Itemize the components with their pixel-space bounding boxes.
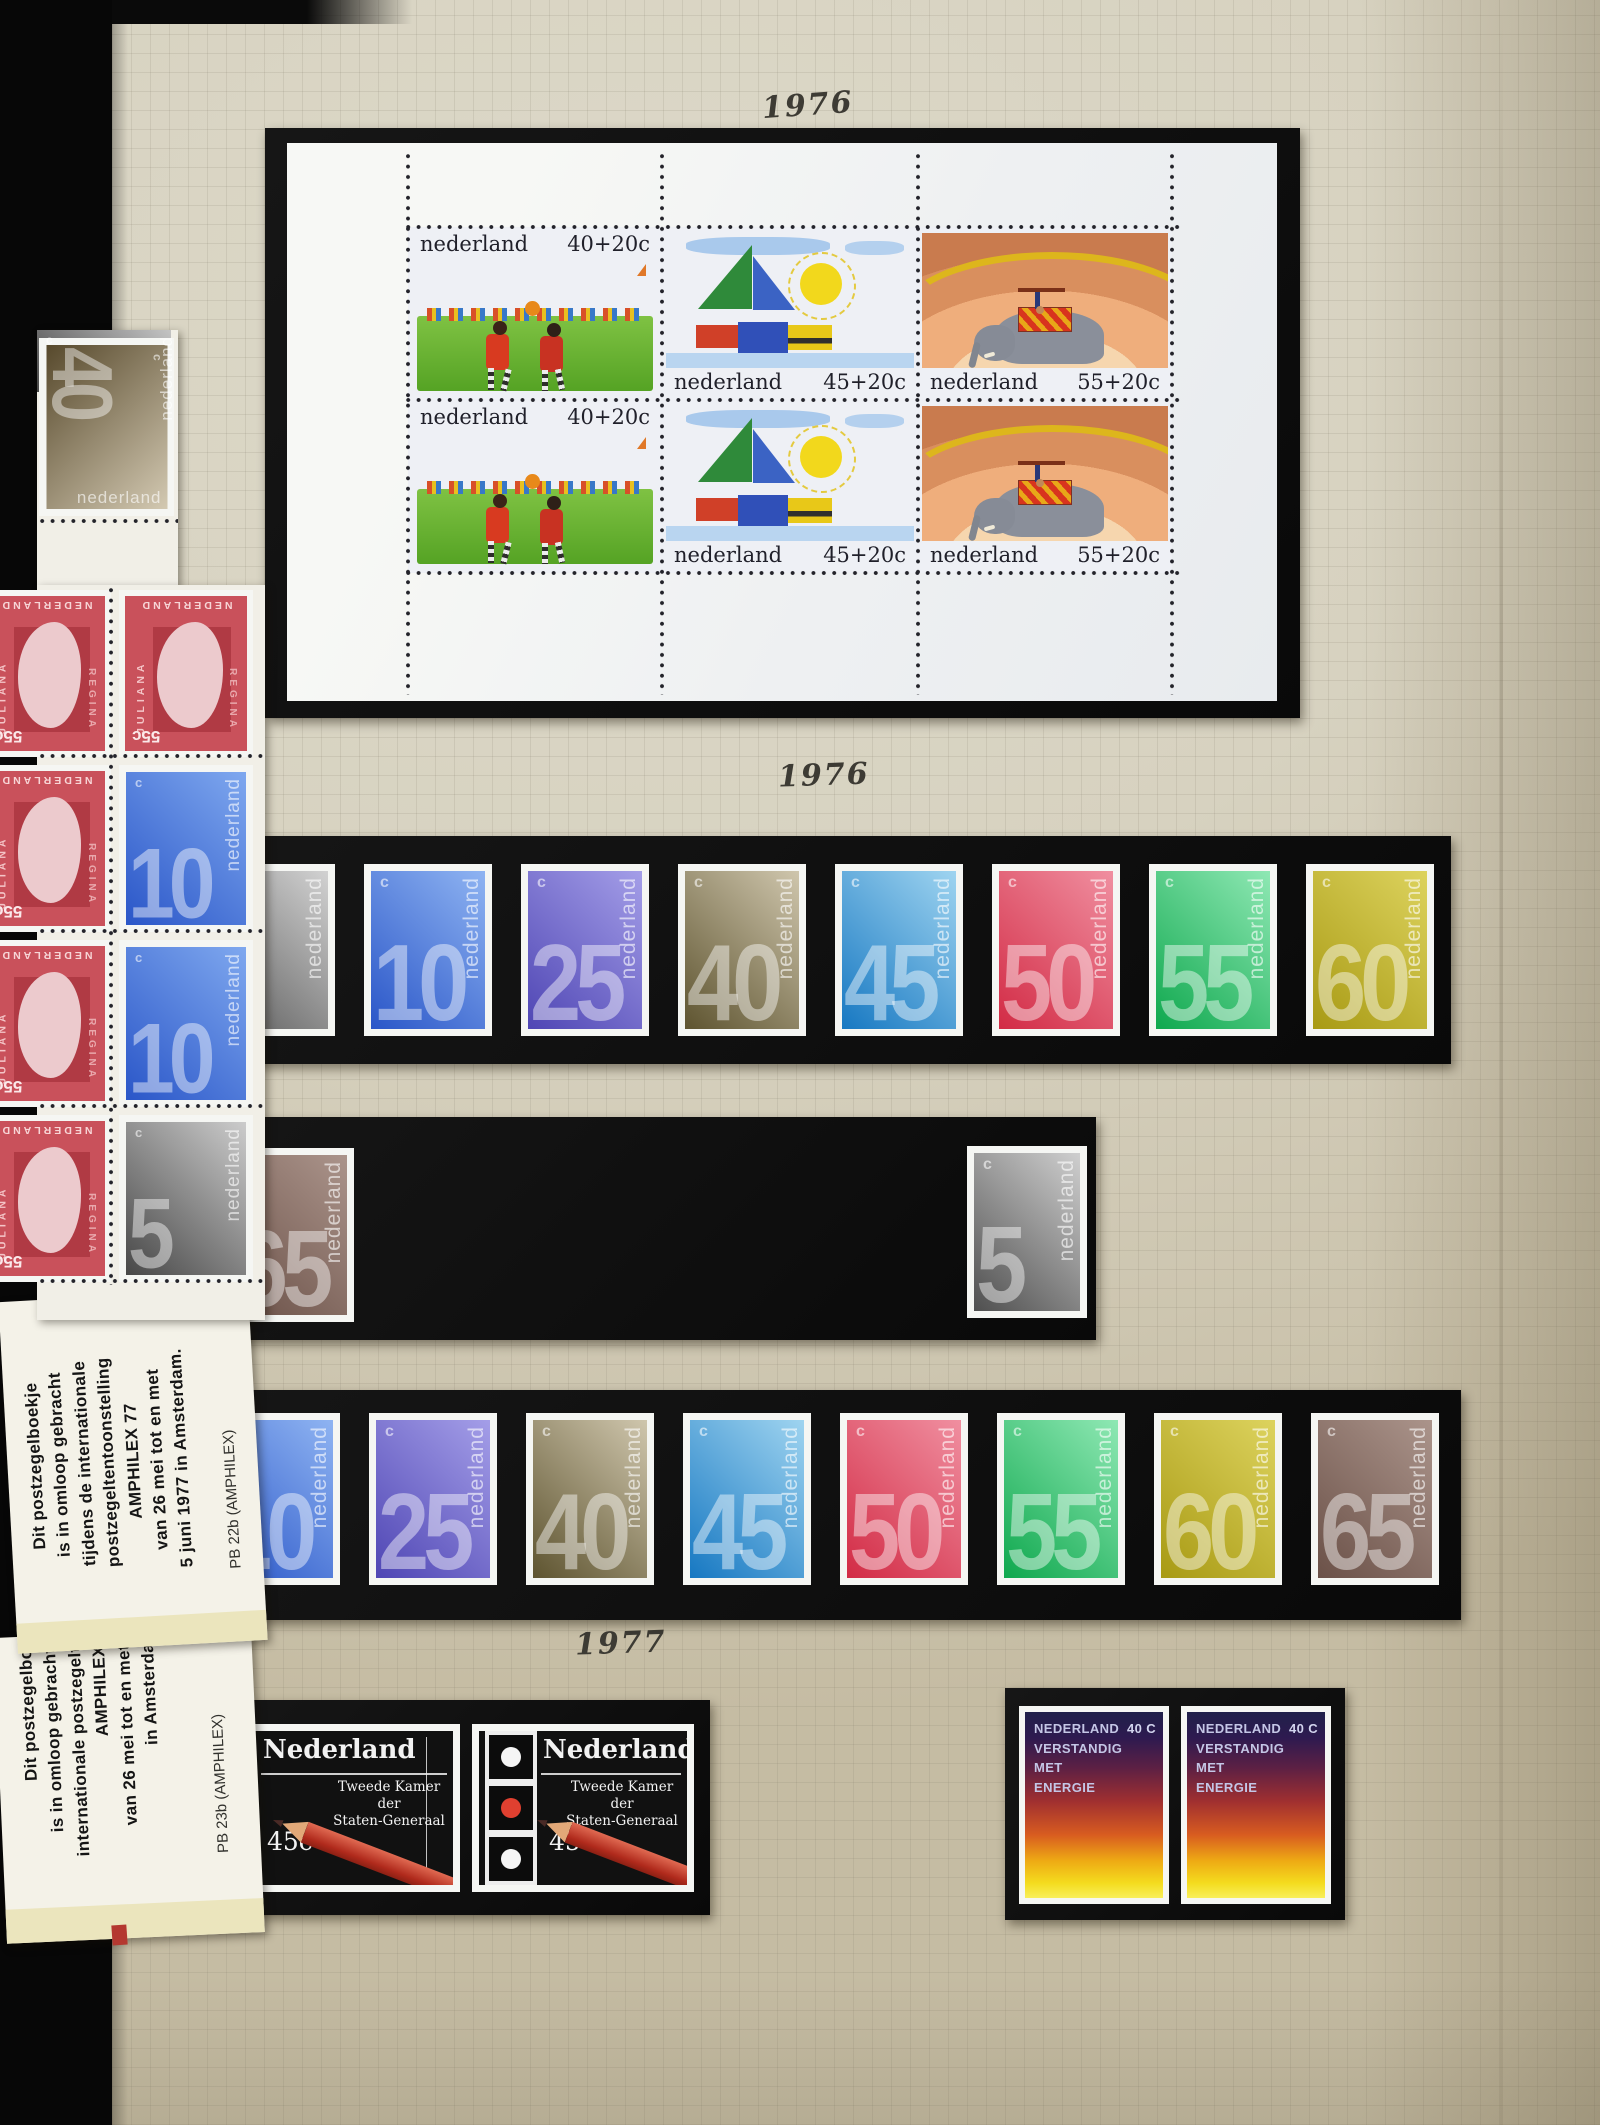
queen-profile-silhouette [157, 622, 223, 727]
perforation-line [913, 151, 923, 695]
stamp-value: 40 C [1289, 1719, 1318, 1739]
stamp-face: c55nederland [1156, 871, 1270, 1029]
player-shirt [540, 336, 563, 372]
stamp-face: c45nederland [842, 871, 956, 1029]
country-label: nederland [308, 1426, 332, 1528]
stamp-face: NederlandTweede Kamer derStaten-Generaal… [479, 1731, 687, 1885]
hull-block-red [696, 325, 738, 348]
stamp-value: 25 [378, 1484, 468, 1578]
stamp-face: c10nederland [126, 772, 246, 925]
juliana-55c-stamp: 55cNEDERLANDJULIANAREGINA [0, 940, 111, 1107]
pencil-tip [271, 1816, 284, 1828]
country-label: nederland [223, 1128, 245, 1222]
stamp-face: 40 CNEDERLANDVERSTANDIGMETENERGIE [1187, 1712, 1325, 1898]
denomination-label: 40+20c [567, 405, 650, 429]
country-label: nederland [223, 778, 245, 872]
numeral-stamp-55c: c55nederland [1149, 864, 1277, 1036]
subtitle-line: Tweede Kamer der [331, 1779, 447, 1813]
country-label: nederland [76, 488, 161, 508]
souvenir-sheet-1976: nederland40+20cnederland45+20cnederland5… [287, 143, 1277, 701]
juliana-55c-stamp: 55cNEDERLANDJULIANAREGINA [0, 590, 111, 757]
country-label: nederland [622, 1426, 646, 1528]
kite [637, 437, 646, 449]
stamp-value: 5 [128, 1190, 175, 1275]
country-label: nederland [303, 877, 327, 979]
perforation-line [37, 1276, 265, 1286]
currency-symbol: c [694, 874, 703, 892]
stamp-face: 55cNEDERLANDJULIANAREGINA [0, 771, 105, 926]
country-label: 40 CNEDERLAND [1196, 1719, 1318, 1739]
stamp-face: c40nederland [46, 345, 167, 509]
hull-block-blue [738, 495, 788, 526]
stamp-face: c55nederland [1004, 1420, 1118, 1578]
stamp-face: c25nederland [376, 1420, 490, 1578]
ballot-dot [501, 1747, 521, 1767]
country-label: nederland [674, 543, 782, 567]
denomination-label: 40+20c [567, 232, 650, 256]
illustration-children-playing-with-ball [412, 432, 658, 567]
country-label: nederland [779, 1426, 803, 1528]
subtitle-line: Staten-Generaal [331, 1813, 447, 1830]
page-crease [1500, 0, 1503, 2125]
illustration-circus-elephant-with-acrobat [922, 406, 1168, 541]
slogan-line: ENERGIE [1034, 1778, 1156, 1798]
inverted-design: 55cNEDERLANDJULIANAREGINA [0, 771, 105, 926]
country-label: NEDERLAND [0, 774, 105, 786]
tweede-kamer-45c-stamp: NederlandTweede Kamer derStaten-Generaal… [246, 1724, 460, 1892]
queen-name-label: JULIANA [0, 1185, 8, 1259]
stamp-face: c5nederland [126, 1122, 246, 1275]
hull-block-striped [788, 498, 833, 524]
year-label-top: 1976 [761, 85, 855, 126]
stamp-text: 40 CNEDERLANDVERSTANDIGMETENERGIE [1196, 1719, 1318, 1797]
perforation-line [37, 516, 178, 526]
slogan-line: MET [1196, 1758, 1318, 1778]
ballot-column [485, 1731, 537, 1885]
slogan-line: VERSTANDIG [1196, 1739, 1318, 1759]
stamp-caption: nederland45+20c [674, 543, 906, 567]
ball [525, 474, 540, 489]
illustration-circus-elephant-with-acrobat [922, 233, 1168, 368]
stamp-subtitle: Tweede Kamer derStaten-Generaal [331, 1779, 447, 1830]
slogan-line: VERSTANDIG [1034, 1739, 1156, 1759]
booklet-pane-amphilex: 55cNEDERLANDJULIANAREGINA55cNEDERLANDJUL… [37, 585, 265, 1320]
sun [800, 436, 842, 478]
stamp-face: 40 CNEDERLANDVERSTANDIGMETENERGIE [1025, 1712, 1163, 1898]
sheet-stamp-45+20c: nederland45+20c [662, 400, 918, 573]
stamp-face: c5nederland [974, 1153, 1080, 1311]
numeral-stamp-10c: c10nederland [119, 940, 253, 1107]
energy-stamps-mount: 40 CNEDERLANDVERSTANDIGMETENERGIE40 CNED… [1005, 1688, 1345, 1920]
numeral-stamp-50c: c50nederland [840, 1413, 968, 1585]
numeral-stamp-40c: c40nederland [678, 864, 806, 1036]
stamp-value: 40 C [1127, 1719, 1156, 1739]
water [666, 526, 914, 541]
juliana-55c-stamp: 55cNEDERLANDJULIANAREGINA [0, 1115, 111, 1282]
stamp-value: 65 [1320, 1484, 1410, 1578]
ballot-dot [501, 1798, 521, 1818]
country-label: NEDERLAND [125, 599, 247, 611]
stamp-value: 50 [1001, 935, 1091, 1029]
currency-symbol: c [1170, 1423, 1179, 1441]
stamp-face: c10nederland [371, 871, 485, 1029]
player-leg [542, 543, 548, 564]
currency-symbol: c [983, 1156, 992, 1174]
denomination-label: 45+20c [823, 543, 906, 567]
cover-text-columns: Dit postzegelboekjeis in omloop gebracht… [15, 1308, 202, 1617]
country-label: 40 CNEDERLAND [1034, 1719, 1156, 1739]
frame-line [426, 1737, 428, 1879]
currency-symbol: c [537, 874, 546, 892]
perforation-line [37, 1101, 265, 1111]
sky-cloud [845, 414, 905, 428]
country-label: nederland [420, 405, 528, 429]
currency-symbol: c [851, 874, 860, 892]
kite [637, 264, 646, 276]
queen-name-label: JULIANA [0, 660, 8, 734]
ballot-dot [501, 1849, 521, 1869]
currency-symbol: c [385, 1423, 394, 1441]
perforation-line [37, 751, 265, 761]
album-top-edge [112, 0, 412, 24]
ballot-box [489, 1735, 533, 1779]
numeral-stamp-60c: c60nederland [1154, 1413, 1282, 1585]
tweede-kamer-mount: NederlandTweede Kamer derStaten-Generaal… [228, 1700, 710, 1915]
currency-symbol: c [1322, 874, 1331, 892]
denomination-label: 55+20c [1077, 370, 1160, 394]
country-label: nederland [157, 336, 171, 392]
inverted-design: 55cNEDERLANDJULIANAREGINA [0, 596, 105, 751]
stamp-face: c10nederland [126, 947, 246, 1100]
player-leg [488, 368, 494, 390]
sheet-stamp-55+20c: nederland55+20c [918, 400, 1172, 573]
country-label: nederland [1088, 877, 1112, 979]
cover-text-line: in Amsterda [135, 1642, 164, 1745]
country-label: nederland [1407, 1426, 1431, 1528]
country-label: nederland [420, 232, 528, 256]
queen-name-label: JULIANA [0, 1010, 8, 1084]
numeral-stamp-40c: c40nederland [526, 1413, 654, 1585]
rotated-40c-stamp: c40nederland [39, 338, 174, 516]
perforation-line [403, 222, 1182, 232]
blanket [1018, 307, 1072, 332]
stamp-value: 60 [1315, 935, 1405, 1029]
numeral-stamp-55c: c55nederland [997, 1413, 1125, 1585]
sheet-stamp-45+20c: nederland45+20c [662, 227, 918, 400]
stamp-value: 10 [373, 935, 463, 1029]
sheet-stamp-40+20c: nederland40+20c [408, 227, 662, 400]
ballot-box [489, 1837, 533, 1881]
player-leg [488, 541, 494, 563]
numeral-stamp-45c: c45nederland [683, 1413, 811, 1585]
stamp-value: 10 [128, 1015, 209, 1100]
illustration-sailboat-and-sun [666, 233, 914, 368]
perforation-line [1167, 151, 1177, 695]
sheet-stamp-55+20c: nederland55+20c [918, 227, 1172, 400]
country-label: nederland [674, 370, 782, 394]
subtitle-line: Tweede Kamer der [563, 1779, 681, 1813]
blue-sail [753, 256, 795, 310]
stamp-face: NederlandTweede Kamer derStaten-Generaal… [253, 1731, 453, 1885]
year-label-middle: 1976 [777, 756, 870, 794]
blue-sail [753, 429, 795, 483]
stamp-face: c60nederland [1313, 871, 1427, 1029]
sky-cloud [845, 241, 905, 255]
currency-symbol: c [135, 1125, 142, 1140]
energy-40c-stamp: 40 CNEDERLANDVERSTANDIGMETENERGIE [1181, 1706, 1331, 1904]
perforation-line [37, 926, 265, 936]
hull-block-red [696, 498, 738, 521]
currency-symbol: c [542, 1423, 551, 1441]
country-label: Nederland [543, 1735, 687, 1765]
currency-symbol: c [380, 874, 389, 892]
red-stamp-sliver [111, 1925, 127, 1946]
numeral-stamp-5c: c5nederland [967, 1146, 1087, 1318]
country-label: nederland [223, 953, 245, 1047]
country-label: NEDERLAND [0, 599, 105, 611]
stamp-caption: nederland55+20c [930, 370, 1160, 394]
catalog-label: PB 22b (AMPHILEX) [220, 1429, 245, 1569]
regina-label: REGINA [86, 843, 97, 906]
stamp-value: 55 [1006, 1484, 1096, 1578]
currency-symbol: c [1013, 1423, 1022, 1441]
booklet-cover-pb23b: Dit postzegelbois in omloop gebrachtinte… [0, 1626, 265, 1943]
ball [525, 301, 540, 316]
ballot-box [489, 1786, 533, 1830]
stamp-face: c60nederland [1161, 1420, 1275, 1578]
numeral-stamp-25c: c25nederland [369, 1413, 497, 1585]
stamp-value: 50 [849, 1484, 939, 1578]
regina-label: REGINA [86, 1193, 97, 1256]
numeral-stamp-50c: c50nederland [992, 864, 1120, 1036]
currency-symbol: c [46, 333, 53, 347]
stamp-value: 40 [535, 1484, 625, 1578]
stamp-value: 45 [692, 1484, 782, 1578]
cover-text-columns: Dit postzegelbois in omloop gebrachtinte… [14, 1642, 170, 1859]
stamp-face: c25nederland [528, 871, 642, 1029]
stamp-value: 40 [687, 935, 777, 1029]
green-sail [698, 418, 752, 482]
booklet-cover-pb22b: Dit postzegelboekjeis in omloop gebracht… [0, 1288, 268, 1653]
perforation-line [657, 151, 667, 695]
country-label: nederland [931, 877, 955, 979]
juliana-55c-stamp: 55cNEDERLANDJULIANAREGINA [119, 590, 253, 757]
numeral-stamp-5c: c5nederland [119, 1115, 253, 1282]
country-label: NEDERLAND [0, 1124, 105, 1136]
country-label: nederland [1093, 1426, 1117, 1528]
numeral-stamp-25c: c25nederland [521, 864, 649, 1036]
currency-symbol: c [699, 1423, 708, 1441]
sun [800, 263, 842, 305]
denomination-label: 45+20c [823, 370, 906, 394]
numeral-stamp-65c: c65nederland [1311, 1413, 1439, 1585]
illustration-sailboat-and-sun [666, 406, 914, 541]
stamp-face: c40nederland [685, 871, 799, 1029]
queen-name-label: JULIANA [0, 835, 8, 909]
currency-symbol: c [135, 775, 142, 790]
denomination-label: 55+20c [1077, 543, 1160, 567]
stamp-caption: nederland55+20c [930, 543, 1160, 567]
souvenir-sheet-mount: nederland40+20cnederland45+20cnederland5… [265, 128, 1300, 718]
player-shirt [540, 509, 563, 545]
country-label: nederland [617, 877, 641, 979]
hull-block-blue [738, 322, 788, 353]
country-label: NEDERLAND [0, 949, 105, 961]
stamp-caption: nederland40+20c [420, 232, 650, 256]
booklet-pane-top: c40nederlandcnederland [37, 330, 178, 588]
country-label: nederland [774, 877, 798, 979]
stamp-value: 45 [844, 935, 934, 1029]
blanket [1018, 480, 1072, 505]
stamp-face: c50nederland [999, 871, 1113, 1029]
stamp-face: c50nederland [847, 1420, 961, 1578]
stamp-face: c65nederland [1318, 1420, 1432, 1578]
player-shirt [486, 507, 509, 543]
grass [417, 316, 653, 392]
stamp-face: 55cNEDERLANDJULIANAREGINA [125, 596, 247, 751]
perforation-line [403, 151, 413, 695]
illustration-children-playing-with-ball [412, 259, 658, 394]
inverted-design: 55cNEDERLANDJULIANAREGINA [0, 946, 105, 1101]
player-shirt [486, 334, 509, 370]
paper-shading-bottom [112, 1975, 1600, 2125]
country-label: nederland [936, 1426, 960, 1528]
stamp-caption: nederland45+20c [674, 370, 906, 394]
country-label: nederland [460, 877, 484, 979]
acrobat-arms [1018, 461, 1065, 465]
numeral-stamp-45c: c45nederland [835, 864, 963, 1036]
player-leg [542, 370, 548, 391]
currency-symbol: c [1008, 874, 1017, 892]
stamp-value: 5 [976, 1217, 1027, 1311]
cover-text-line: AMPHILEX [87, 1645, 115, 1737]
frame-line [541, 1773, 681, 1775]
hull-block-striped [788, 325, 833, 351]
pencil-tip [536, 1816, 549, 1828]
numeral-stamp-10c: c10nederland [119, 765, 253, 932]
stamp-face: c40nederland [533, 1420, 647, 1578]
water [666, 353, 914, 368]
stamp-face: c45nederland [690, 1420, 804, 1578]
juliana-55c-stamp: 55cNEDERLANDJULIANAREGINA [0, 765, 111, 932]
pencil-body [301, 1822, 453, 1885]
country-label: nederland [1250, 1426, 1274, 1528]
inverted-design: 55cNEDERLANDJULIANAREGINA [125, 596, 247, 751]
country-label: nederland [1055, 1159, 1079, 1261]
player-head [493, 494, 507, 508]
country-label: nederland [1245, 877, 1269, 979]
country-label: nederland [930, 370, 1038, 394]
stamp-value: 40 [46, 347, 118, 417]
catalog-label: PB 23b (AMPHILEX) [209, 1714, 232, 1854]
stamp-value: 10 [128, 840, 209, 925]
country-label: nederland [322, 1161, 346, 1263]
year-label-bottom: 1977 [574, 1624, 667, 1662]
perforation-line [403, 395, 1182, 405]
stamp-text: 40 CNEDERLANDVERSTANDIGMETENERGIE [1034, 1719, 1156, 1797]
numeral-strip-mount-2: c65nederlandc5nederland [195, 1117, 1096, 1340]
currency-symbol: c [1327, 1423, 1336, 1441]
regina-label: REGINA [227, 668, 238, 731]
stamp-face: 55cNEDERLANDJULIANAREGINA [0, 596, 105, 751]
stamp-subtitle: Tweede Kamer derStaten-Generaal [563, 1779, 681, 1830]
stamp-face: 55cNEDERLANDJULIANAREGINA [0, 1121, 105, 1276]
energy-40c-stamp: 40 CNEDERLANDVERSTANDIGMETENERGIE [1019, 1706, 1169, 1904]
inverted-design: 55cNEDERLANDJULIANAREGINA [0, 1121, 105, 1276]
grass [417, 489, 653, 565]
country-label: nederland [930, 543, 1038, 567]
stamp-value: 25 [530, 935, 620, 1029]
green-sail [698, 245, 752, 309]
slogan-line: ENERGIE [1196, 1778, 1318, 1798]
queen-name-label: JULIANA [135, 660, 147, 734]
numeral-stamp-60c: c60nederland [1306, 864, 1434, 1036]
country-label: nederland [465, 1426, 489, 1528]
frame-line [261, 1773, 447, 1775]
tweede-kamer-45c-stamp: NederlandTweede Kamer derStaten-Generaal… [472, 1724, 694, 1892]
numeral-stamp-10c: c10nederland [364, 864, 492, 1036]
slogan-line: MET [1034, 1758, 1156, 1778]
stamp-value: 55 [1158, 935, 1248, 1029]
stamp-album-page-photo: 1976 1976 1977 nederland40+20cnederland4… [0, 0, 1600, 2125]
player-head [493, 321, 507, 335]
regina-label: REGINA [86, 668, 97, 731]
country-label: nederland [1402, 877, 1426, 979]
stamp-face: 55cNEDERLANDJULIANAREGINA [0, 946, 105, 1101]
perforation-line [403, 568, 1182, 578]
currency-symbol: c [1165, 874, 1174, 892]
regina-label: REGINA [86, 1018, 97, 1081]
stamp-caption: nederland40+20c [420, 405, 650, 429]
acrobat-arms [1018, 288, 1065, 292]
numeral-strip-mount-1: c5nederlandc10nederlandc25nederlandc40ne… [195, 836, 1451, 1064]
currency-symbol: c [135, 950, 142, 965]
numeral-strip-mount-3: c10nederlandc25nederlandc40nederlandc45n… [195, 1390, 1461, 1620]
currency-symbol: c [856, 1423, 865, 1441]
country-label: Nederland [263, 1735, 416, 1765]
stamp-value: 60 [1163, 1484, 1253, 1578]
sheet-stamp-40+20c: nederland40+20c [408, 400, 662, 573]
